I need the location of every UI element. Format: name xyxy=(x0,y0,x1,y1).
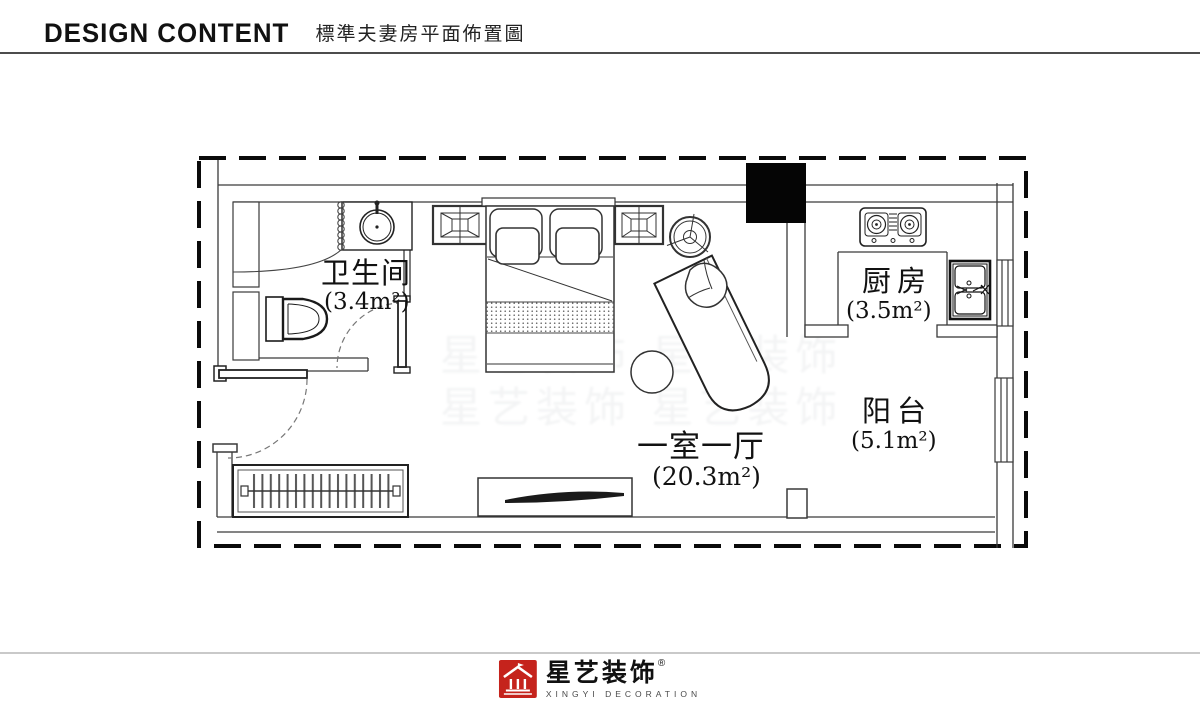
nightstand-left xyxy=(433,206,487,244)
design-sheet: DESIGN CONTENT 標準夫妻房平面佈置圖 星艺装饰 星艺装饰 星艺装饰… xyxy=(0,0,1200,714)
floor-plan-drawing xyxy=(0,0,1200,714)
cushion xyxy=(496,228,539,264)
bathroom-shelves xyxy=(233,202,259,360)
kitchen-window xyxy=(997,260,1013,326)
wash-basin xyxy=(342,201,412,251)
room-label-bathroom: 卫生间 xyxy=(321,250,411,292)
stool xyxy=(631,351,673,393)
brand-name-zh: 星艺装饰 xyxy=(546,660,658,686)
gas-stove xyxy=(860,208,926,246)
balcony-window xyxy=(995,378,1013,462)
structural-column xyxy=(746,163,806,223)
room-area-kitchen: (3.5m²) xyxy=(846,298,932,324)
brand-name-en: XINGYI DECORATION xyxy=(546,689,701,699)
ceiling-fan xyxy=(667,214,710,257)
footer-rule xyxy=(0,652,1200,654)
kitchen-sink xyxy=(950,261,990,319)
room-label-living: 一室一厅 xyxy=(637,421,765,466)
room-area-balcony: (5.1m²) xyxy=(851,428,937,454)
brand-house-icon xyxy=(499,660,537,698)
wardrobe-with-hangers xyxy=(233,465,408,517)
nightstand-right xyxy=(615,206,663,244)
cushion xyxy=(556,228,599,264)
registered-mark: ® xyxy=(658,658,665,669)
room-area-bathroom: (3.4m²) xyxy=(324,289,410,315)
blanket xyxy=(486,302,614,333)
room-label-balcony: 阳台 xyxy=(862,388,932,430)
room-label-kitchen: 厨房 xyxy=(862,258,932,300)
tv-cabinet xyxy=(478,478,632,516)
double-bed xyxy=(482,198,615,372)
chaise-lounge xyxy=(654,256,778,421)
room-area-living: (20.3m²) xyxy=(652,462,761,491)
toilet xyxy=(266,297,327,341)
brand-logo: 星艺装饰 ® XINGYI DECORATION xyxy=(499,660,701,699)
